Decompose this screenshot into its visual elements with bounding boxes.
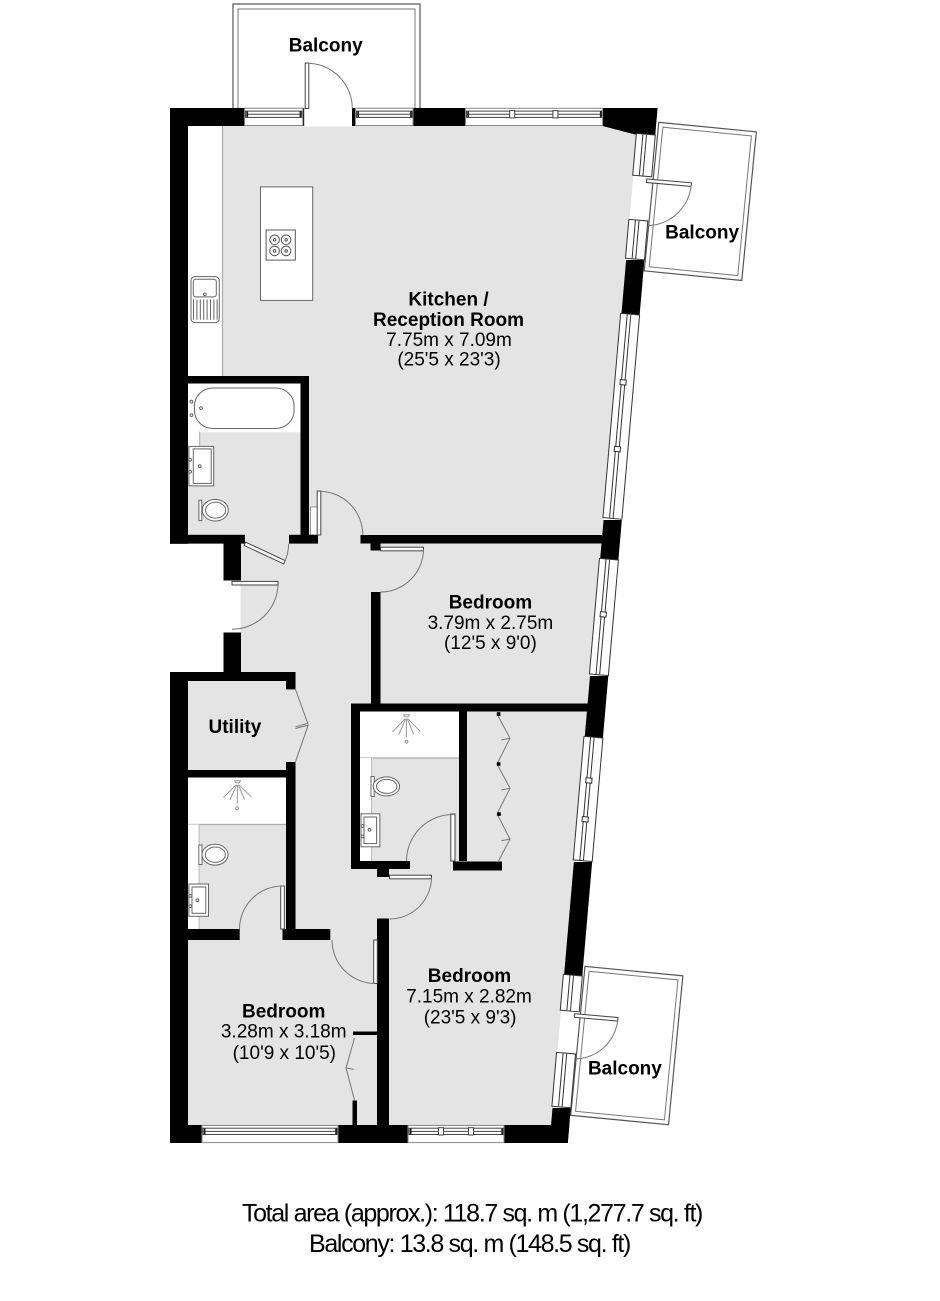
svg-text:Reception Room: Reception Room — [373, 310, 524, 331]
svg-text:Balcony: Balcony — [588, 1059, 662, 1080]
svg-text:Kitchen /: Kitchen / — [408, 290, 489, 311]
svg-text:7.15m x 2.82m: 7.15m x 2.82m — [406, 987, 532, 1008]
svg-text:3.79m x 2.75m: 3.79m x 2.75m — [428, 613, 554, 634]
svg-text:Bedroom: Bedroom — [242, 1001, 325, 1022]
svg-text:(25'5 x 23'3): (25'5 x 23'3) — [397, 350, 500, 371]
svg-text:Total area (approx.): 118.7 sq: Total area (approx.): 118.7 sq. m (1,277… — [242, 1199, 702, 1227]
svg-text:Bedroom: Bedroom — [449, 593, 532, 614]
svg-text:3.28m x 3.18m: 3.28m x 3.18m — [221, 1022, 347, 1043]
svg-text:Bedroom: Bedroom — [428, 966, 511, 987]
svg-text:Balcony: Balcony — [289, 36, 363, 57]
svg-text:(12'5 x 9'0): (12'5 x 9'0) — [444, 633, 537, 654]
svg-text:7.75m x 7.09m: 7.75m x 7.09m — [386, 330, 512, 351]
svg-text:Balcony: Balcony — [665, 223, 739, 244]
svg-text:(23'5 x 9'3): (23'5 x 9'3) — [424, 1007, 517, 1028]
svg-text:Balcony: 13.8 sq. m (148.5 sq.: Balcony: 13.8 sq. m (148.5 sq. ft) — [309, 1230, 630, 1258]
svg-text:Utility: Utility — [209, 717, 262, 738]
svg-text:(10'9 x 10'5): (10'9 x 10'5) — [233, 1043, 336, 1064]
